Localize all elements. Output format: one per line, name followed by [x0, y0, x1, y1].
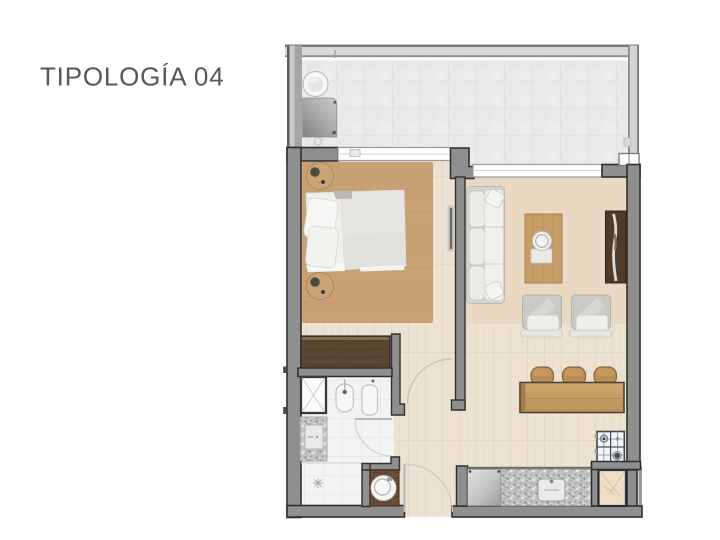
svg-text:TIPOLOGÍA 04: TIPOLOGÍA 04	[40, 62, 224, 92]
